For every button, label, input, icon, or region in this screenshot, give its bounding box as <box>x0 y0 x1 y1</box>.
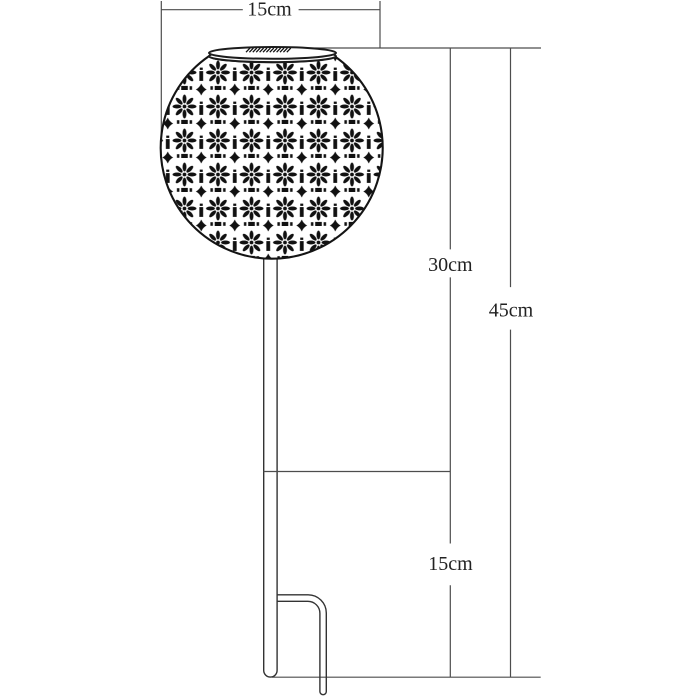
svg-text:45cm: 45cm <box>489 300 534 322</box>
svg-text:15cm: 15cm <box>428 553 473 575</box>
svg-text:15cm: 15cm <box>247 0 292 21</box>
svg-text:30cm: 30cm <box>428 254 473 276</box>
